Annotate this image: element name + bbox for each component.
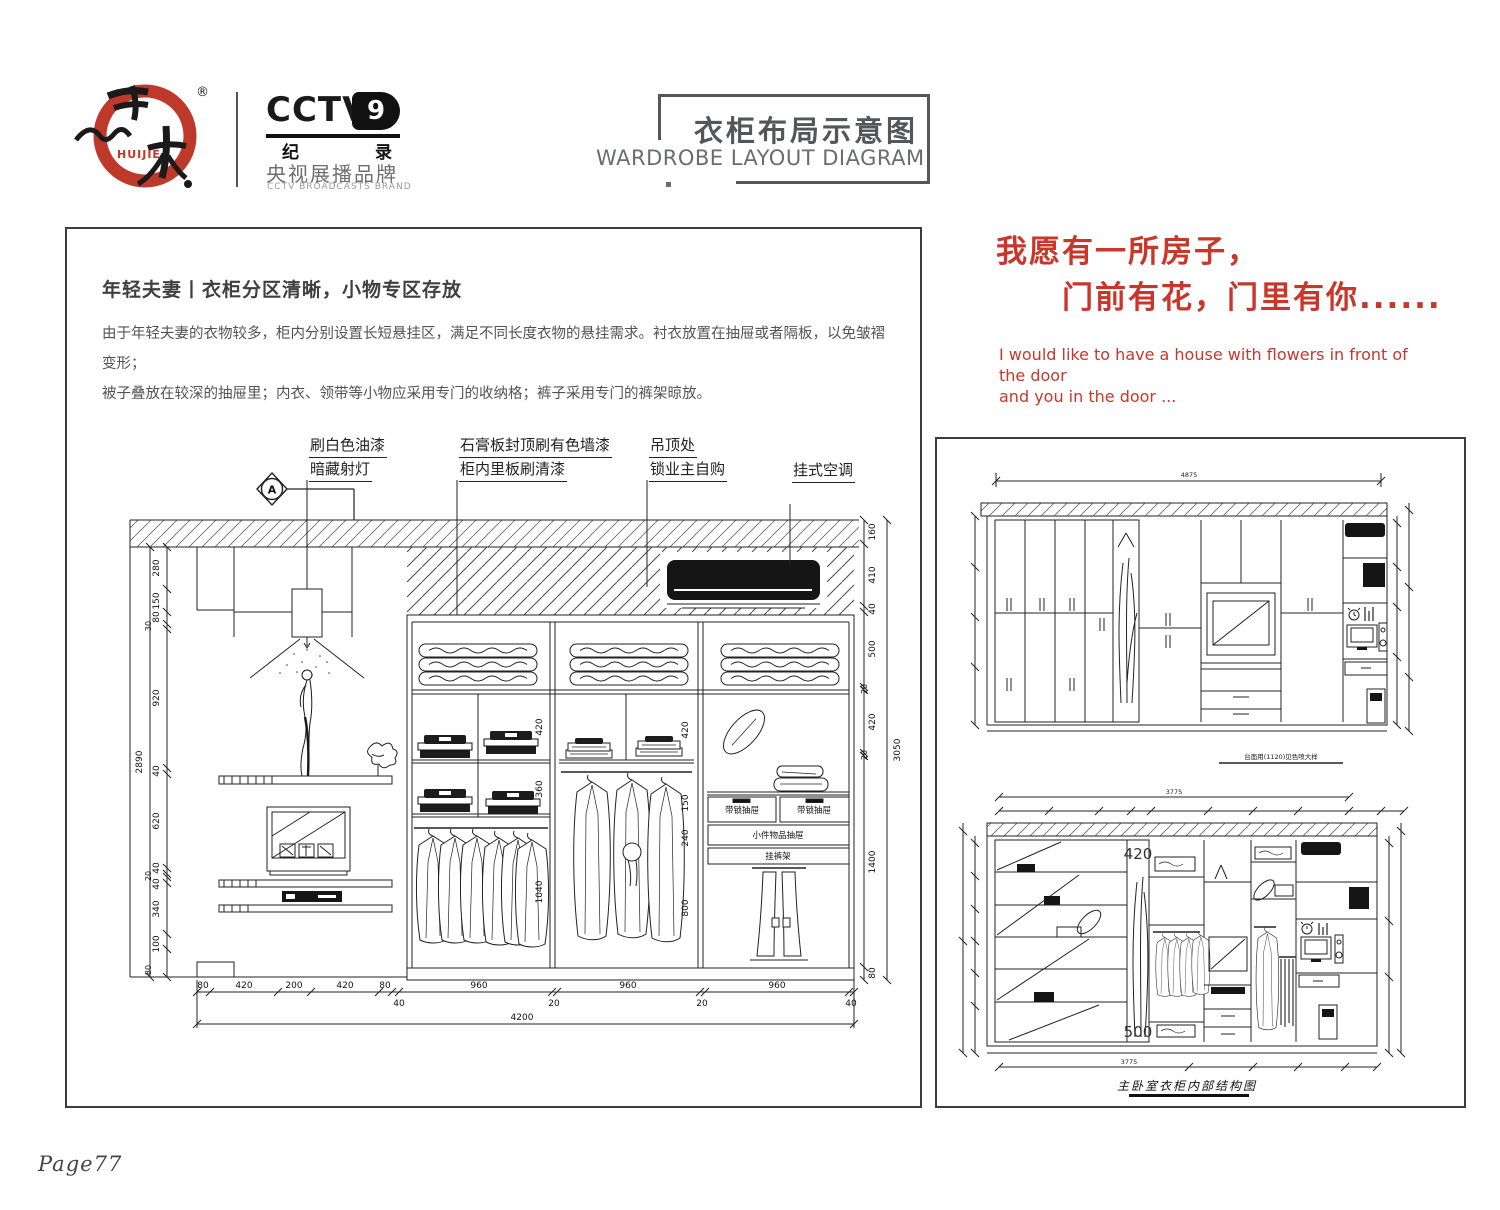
callout-gypsum: 石膏板封顶刷有色墙漆 柜内里板刷清漆 — [459, 434, 612, 482]
callout-line: 柜内里板刷清漆 — [459, 458, 567, 482]
slogan-en-line1: I would like to have a house with flower… — [999, 344, 1429, 386]
dim: 420 — [868, 713, 878, 730]
dim: 160 — [868, 523, 878, 540]
callout-air-conditioner: 挂式空调 — [792, 459, 855, 483]
callout-ceiling-lock: 吊顶处 锁业主自购 — [649, 434, 727, 482]
dvd-player — [282, 891, 342, 902]
dim: 1400 — [868, 850, 878, 873]
pants-rack-label: 挂裤架 — [765, 851, 791, 862]
blanket-stack — [774, 766, 828, 791]
internal-total-width-top: 3775 — [1166, 788, 1183, 796]
small-items-drawer-label: 小件物品抽屉 — [752, 830, 803, 841]
dim: 960 — [470, 981, 487, 991]
paragraph-line1: 由于年轻夫妻的衣物较多，柜内分别设置长短悬挂区，满足不同长度衣物的悬挂需求。衬衣… — [102, 319, 892, 379]
dim: 20 — [548, 999, 560, 1009]
tv-with-sockets — [267, 807, 350, 875]
dim: 20 — [696, 999, 708, 1009]
callout-line: 吊顶处 — [649, 434, 697, 458]
cctv-9-badge: 9 — [352, 92, 400, 130]
niche-dim-420: 420 — [1124, 845, 1153, 863]
dim: 80 — [868, 967, 878, 979]
niche-dim-500: 500 — [1124, 1023, 1153, 1041]
section-paragraph: 由于年轻夫妻的衣物较多，柜内分别设置长短悬挂区，满足不同长度衣物的悬挂需求。衬衣… — [102, 319, 892, 409]
callout-line: 锁业主自购 — [649, 458, 727, 482]
dim: 20 — [860, 684, 869, 694]
mannequin — [292, 670, 322, 782]
tv-display-unit — [197, 547, 364, 678]
dim: 40 — [152, 765, 162, 777]
folded-clothes — [484, 731, 538, 754]
drawing-caption: 主卧室衣柜内部结构图 — [1117, 1079, 1257, 1093]
dim: 620 — [152, 812, 162, 829]
page-title-en: WARDROBE LAYOUT DIAGRAM — [596, 146, 925, 170]
slogan-en-line2: and you in the door ... — [999, 386, 1429, 407]
long-coat — [574, 775, 611, 940]
quilts-bay1 — [419, 644, 537, 685]
folded-clothes — [418, 789, 472, 812]
dim: 80 — [379, 981, 391, 991]
brand-name-en: HUIJIE — [117, 148, 161, 161]
dim: 420 — [336, 981, 353, 991]
dim: 410 — [868, 566, 878, 583]
dim-total-bottom: 4200 — [511, 1013, 534, 1023]
dim: 360 — [535, 780, 545, 797]
front-elevation-svg: 4875 台面用(1120)见色喷大样 — [951, 463, 1448, 781]
slogan-english: I would like to have a house with flower… — [999, 344, 1429, 407]
long-coat — [648, 777, 685, 942]
dim: 40 — [152, 878, 162, 890]
huijie-logo: HUIJIE ® — [70, 74, 235, 204]
dim: 500 — [868, 640, 878, 657]
internal-total-width-bottom: 3775 — [1121, 1058, 1138, 1066]
light-speckle — [279, 649, 330, 676]
callout-line: 刷白色油漆 — [309, 434, 387, 458]
scarf — [623, 843, 641, 861]
page-number: Page77 — [38, 1152, 122, 1176]
dim-total-left: 2890 — [135, 750, 145, 773]
dim: 920 — [152, 689, 162, 706]
page-title-zh: 衣柜布局示意图 — [694, 108, 918, 150]
dim: 80 — [197, 981, 209, 991]
air-conditioner — [667, 560, 820, 600]
dim: 1040 — [535, 880, 545, 903]
internal-structure-svg: 3775 420 500 3775 主卧室衣柜内部结构图 — [949, 787, 1452, 1103]
registered-mark: ® — [196, 85, 209, 100]
dim: 80 — [144, 965, 153, 975]
dim: 340 — [152, 900, 162, 917]
flower — [368, 743, 398, 778]
ceiling-hatch — [130, 520, 859, 547]
dim-total-right: 3050 — [893, 738, 903, 761]
dim: 150 — [152, 592, 162, 609]
dim: 960 — [768, 981, 785, 991]
folded-clothes — [418, 735, 472, 758]
quilts-bay3 — [721, 644, 839, 685]
folded-clothes — [486, 791, 540, 814]
top-elevation-total-width: 4875 — [1181, 471, 1198, 479]
callout-line: 暗藏射灯 — [309, 458, 372, 482]
quilts-bay2 — [570, 644, 688, 685]
dim: 150 — [681, 794, 691, 811]
slogan-line2: 门前有花，门里有你...... — [1062, 272, 1442, 317]
callout-line: 挂式空调 — [792, 459, 855, 483]
dim: 20 — [860, 750, 869, 760]
dim: 280 — [152, 559, 162, 576]
locked-drawer-label-2: 带锁抽屉 — [797, 805, 831, 816]
dim: 40 — [845, 999, 857, 1009]
logo-divider — [236, 92, 238, 187]
dim: 960 — [619, 981, 636, 991]
dim: 100 — [152, 935, 162, 952]
title-box: 衣柜布局示意图 WARDROBE LAYOUT DIAGRAM — [658, 94, 930, 184]
dim: 800 — [681, 899, 691, 916]
caption-underline — [1129, 1094, 1249, 1097]
dim: 420 — [235, 981, 252, 991]
cctv-brand-line-en: CCTV BROADCASTS BRAND — [267, 182, 412, 192]
dim: 240 — [681, 829, 691, 846]
main-diagram-panel: 年轻夫妻丨衣柜分区清晰，小物专区存放 由于年轻夫妻的衣物较多，柜内分别设置长短悬… — [65, 227, 922, 1108]
detail-drawings-panel: 4875 台面用(1120)见色喷大样 — [935, 437, 1466, 1108]
wardrobe-section-drawing: A — [122, 432, 912, 1072]
dim: 80 — [152, 611, 162, 623]
dim: 200 — [285, 981, 302, 991]
dim: 40 — [152, 862, 162, 874]
locked-drawer-label-1: 带锁抽屉 — [725, 805, 759, 816]
section-heading: 年轻夫妻丨衣柜分区清晰，小物专区存放 — [102, 275, 462, 302]
dim: 30 — [144, 621, 153, 631]
title-dot — [666, 182, 671, 187]
dim: 420 — [681, 721, 691, 738]
dim: 420 — [535, 718, 545, 735]
slogan-line1: 我愿有一所房子， — [996, 226, 1260, 271]
callout-paint-spotlight: 刷白色油漆 暗藏射灯 — [309, 434, 387, 482]
page: HUIJIE ® CCTV 9 纪 录 央视展播品牌 CCTV BROADCAS… — [0, 0, 1500, 1210]
spec-note: 台面用(1120)见色喷大样 — [1244, 752, 1318, 761]
paragraph-line2: 被子叠放在较深的抽屉里；内衣、领带等小物应采用专门的收纳格；裤子采用专门的裤架晾… — [102, 379, 892, 409]
callout-line: 石膏板封顶刷有色墙漆 — [459, 434, 612, 458]
svg-text:A: A — [268, 484, 277, 497]
dim: 40 — [868, 603, 878, 615]
wardrobe-elevation-svg: A — [122, 432, 912, 1072]
dim: 40 — [393, 999, 405, 1009]
